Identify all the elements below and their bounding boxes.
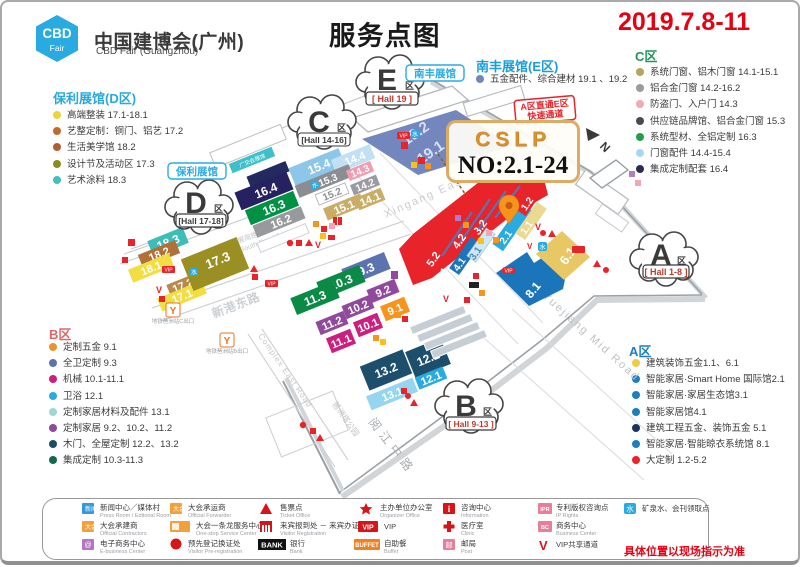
svg-text:新闻中心／媒体村: 新闻中心／媒体村 — [100, 502, 160, 512]
svg-text:自助餐: 自助餐 — [384, 538, 407, 548]
svg-text:Bank: Bank — [290, 549, 303, 555]
svg-text:Official Forwarder: Official Forwarder — [188, 513, 231, 519]
svg-text:Visitor Registration: Visitor Registration — [280, 531, 326, 537]
svg-text:大会一条龙服务中心: 大会一条龙服务中心 — [196, 520, 264, 530]
svg-text:Business Center: Business Center — [556, 531, 597, 537]
svg-text:VIP: VIP — [362, 525, 374, 532]
svg-text:电子商务中心: 电子商务中心 — [100, 538, 145, 548]
svg-text:BUFFET: BUFFET — [355, 543, 379, 549]
svg-text:VIP共享通道: VIP共享通道 — [556, 539, 599, 549]
svg-text:V: V — [539, 538, 548, 553]
svg-text:IPR: IPR — [540, 507, 549, 513]
svg-text:Organizer Office: Organizer Office — [380, 513, 420, 519]
svg-text:大会: 大会 — [85, 523, 97, 531]
svg-text:IP Rights: IP Rights — [556, 513, 578, 519]
svg-text:邮: 邮 — [446, 541, 453, 550]
svg-text:Clinic: Clinic — [461, 531, 475, 537]
svg-text:来宾报到处 － 来宾办证: 来宾报到处 － 来宾办证 — [280, 520, 360, 530]
svg-text:水: 水 — [626, 504, 634, 514]
svg-text:预先登记换证处: 预先登记换证处 — [188, 538, 241, 548]
svg-text:Visitor Pre-registration: Visitor Pre-registration — [188, 549, 242, 555]
svg-text:商务中心: 商务中心 — [556, 520, 586, 530]
svg-text:银行: 银行 — [290, 538, 305, 548]
svg-text:@: @ — [84, 542, 91, 549]
svg-text:大会承运商: 大会承运商 — [188, 502, 226, 512]
svg-text:Information: Information — [461, 513, 489, 519]
svg-text:E-business Center: E-business Center — [100, 549, 145, 555]
svg-text:邮局: 邮局 — [461, 538, 476, 548]
svg-text:Press Room / Editorial Room: Press Room / Editorial Room — [100, 513, 171, 519]
svg-text:Post: Post — [461, 549, 472, 555]
svg-text:大会承建商: 大会承建商 — [100, 520, 138, 530]
svg-text:咨询中心: 咨询中心 — [461, 502, 491, 512]
svg-text:主办单位办公室: 主办单位办公室 — [380, 502, 433, 512]
svg-text:Ticket Office: Ticket Office — [280, 513, 310, 519]
svg-text:Official Contractors: Official Contractors — [100, 531, 147, 537]
svg-text:BANK: BANK — [261, 541, 283, 550]
svg-text:Buffet: Buffet — [384, 549, 399, 555]
svg-text:售票点: 售票点 — [280, 502, 303, 512]
svg-text:医疗室: 医疗室 — [461, 520, 484, 530]
svg-text:大会: 大会 — [173, 505, 185, 513]
svg-text:新闻: 新闻 — [85, 505, 97, 513]
svg-text:矿泉水、会刊领取点: 矿泉水、会刊领取点 — [642, 503, 710, 513]
svg-text:专利版权咨询点: 专利版权咨询点 — [556, 502, 609, 512]
svg-text:VIP: VIP — [384, 522, 396, 531]
svg-text:One-stop Service Center: One-stop Service Center — [196, 531, 257, 537]
svg-text:BC: BC — [541, 525, 549, 531]
